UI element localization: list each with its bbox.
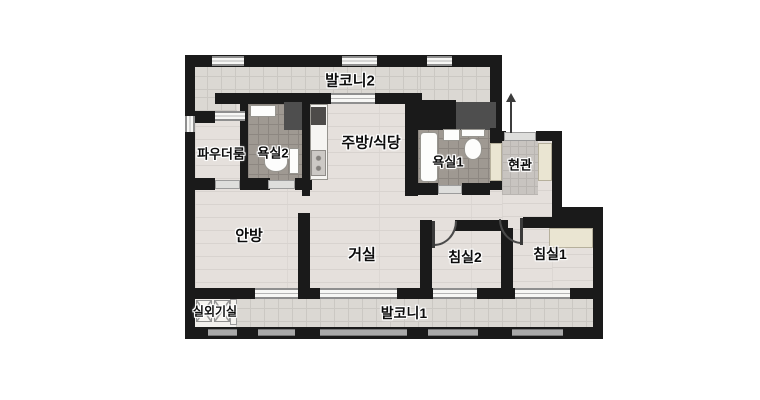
wall-powder-window-pier [195, 111, 215, 123]
toilet-tank-icon [289, 148, 299, 174]
door-leaf-bedroom1 [520, 218, 523, 245]
room-label-powder-room: 파우더룸 [197, 144, 245, 163]
room-label-outdoor-unit-room: 실외기실 [193, 303, 237, 320]
living-room-window-icon [320, 288, 397, 299]
wall-bathroom1-bottom-a [418, 183, 438, 195]
master-bedroom-window-icon [255, 288, 298, 299]
wall-bathroom1-bottom-b [462, 183, 490, 195]
wall-kitchen-top-a [312, 93, 331, 104]
door-sill-bathroom1 [438, 185, 462, 194]
shoe-closet-icon [490, 143, 502, 181]
sink-icon [250, 105, 276, 117]
balcony-glazing-panel [258, 329, 295, 336]
room-label-bathroom1: 욕실1 [432, 152, 463, 171]
wall-bedroom1-top [523, 217, 603, 228]
window-symbol-icon [342, 56, 377, 66]
balcony-door-icon [331, 93, 375, 104]
wall-living-bedroom2-divider [420, 220, 432, 297]
wall-kitchen-top-b [375, 93, 422, 104]
room-label-balcony2: 발코니2 [325, 70, 375, 91]
wall-bathroom1-top [418, 100, 456, 130]
balcony-glazing-panel [428, 329, 478, 336]
room-label-entrance: 현관 [508, 155, 532, 174]
room-label-bathroom2: 욕실2 [257, 143, 288, 162]
room-label-balcony1: 발코니1 [381, 303, 427, 323]
door-sill-powder-room [215, 180, 240, 189]
toilet-icon [464, 138, 482, 160]
duct-shaft-right [456, 102, 496, 130]
window-symbol-icon [427, 56, 452, 66]
wall-powder-bottom [185, 178, 215, 190]
stove-icon [311, 150, 326, 176]
door-leaf-bedroom2 [432, 221, 435, 248]
window-symbol-icon [212, 56, 244, 66]
balcony-glazing-panel [208, 329, 237, 336]
window-symbol-icon [185, 116, 195, 132]
wall-entrance-right [552, 138, 562, 218]
balcony-glazing-panel [320, 329, 407, 336]
room-label-bedroom2: 침실2 [448, 247, 482, 267]
bedroom1-window-icon [515, 288, 570, 299]
wall-right [593, 207, 603, 339]
duct-shaft-bathroom2 [284, 102, 302, 130]
toilet-tank-icon [461, 129, 485, 137]
wall-bathroom2-bottom-a [240, 178, 270, 190]
wall-pier-5 [570, 288, 603, 299]
wall-pier-4 [477, 288, 515, 299]
floor-plan: 발코니2 파우더룸 욕실2 주방/식당 욕실1 현관 안방 거실 침실2 침실1… [0, 0, 760, 400]
range-hood-icon [311, 107, 326, 125]
entrance-door-threshold [504, 132, 536, 141]
wall-pier-1 [185, 288, 255, 299]
floor-balcony2-right [420, 63, 490, 105]
door-sill-bathroom2 [268, 180, 295, 189]
bedroom2-window-icon [433, 288, 477, 299]
powder-room-window-icon [215, 111, 245, 121]
sink-icon [443, 129, 460, 141]
wall-kitchen-right [405, 104, 418, 196]
room-label-kitchen-dining: 주방/식당 [341, 132, 400, 153]
wall-master-living-divider [298, 213, 310, 297]
room-label-living-room: 거실 [348, 244, 376, 265]
room-label-master-bedroom: 안방 [235, 225, 263, 246]
balcony-glazing-panel [512, 329, 563, 336]
entrance-arrow-head-icon [506, 93, 516, 102]
entrance-arrow-icon [510, 101, 512, 133]
shoe-closet-icon [538, 143, 552, 181]
wall-pier-3 [397, 288, 433, 299]
room-label-bedroom1: 침실1 [533, 244, 567, 264]
